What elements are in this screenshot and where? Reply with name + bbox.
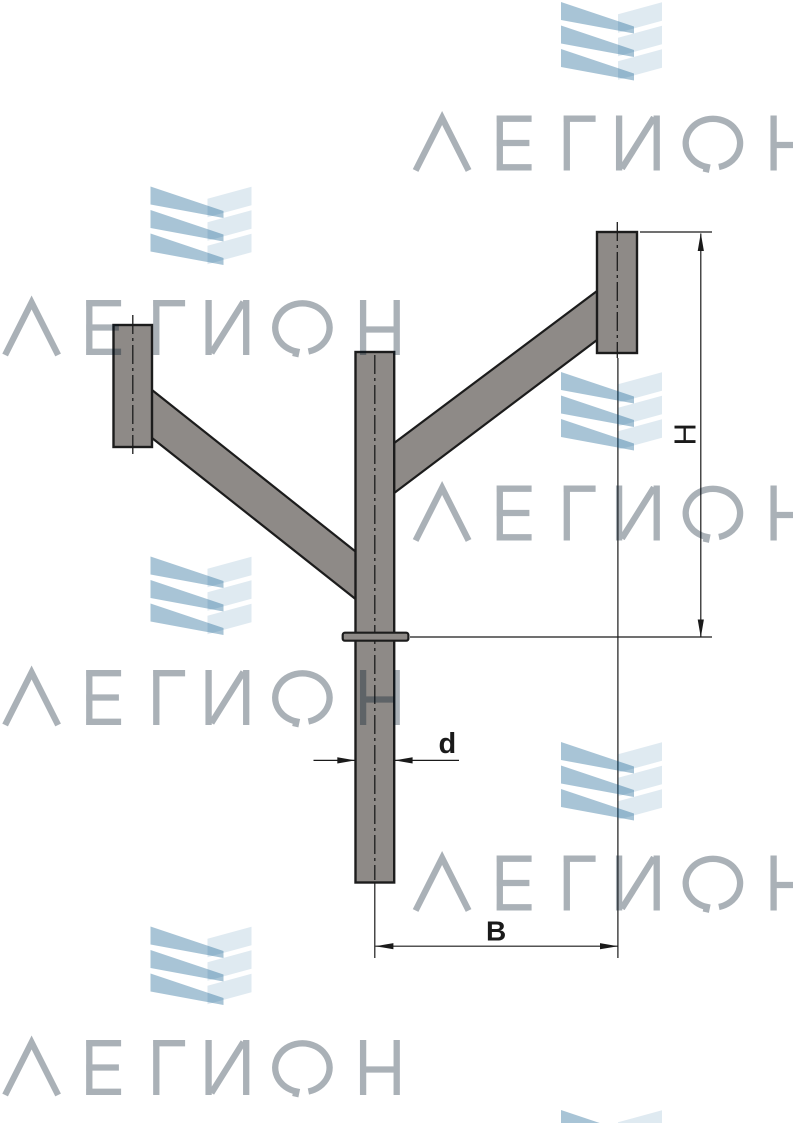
svg-text:B: B [486, 916, 506, 947]
svg-text:H: H [668, 423, 703, 445]
svg-text:d: d [439, 728, 457, 760]
